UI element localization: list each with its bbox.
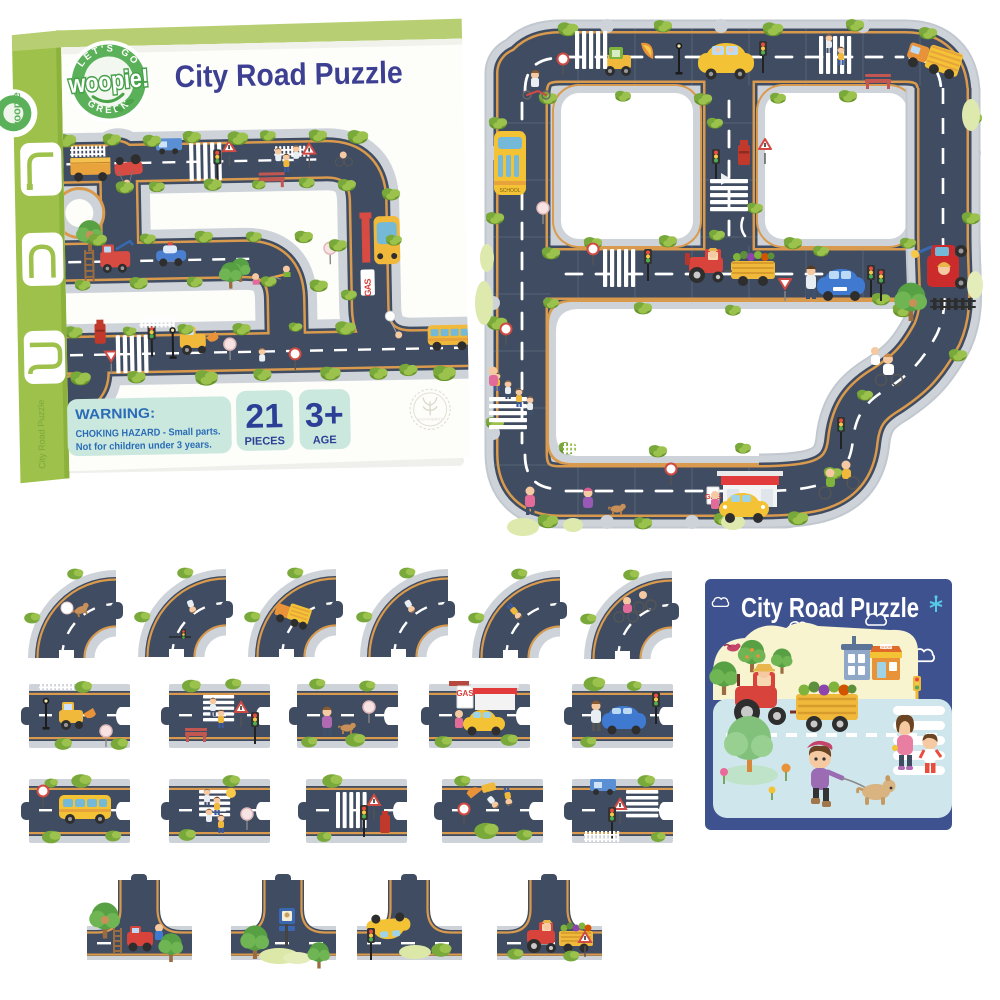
svg-text:GAS: GAS: [363, 278, 373, 296]
svg-text:21: 21: [245, 397, 284, 436]
svg-text:GAS: GAS: [456, 689, 474, 698]
svg-text:City Road Puzzle: City Road Puzzle: [741, 592, 919, 623]
svg-text:AGE: AGE: [313, 434, 337, 446]
svg-text:ECO FRIENDLY: ECO FRIENDLY: [418, 417, 444, 421]
svg-text:SCHOOL: SCHOOL: [499, 188, 520, 194]
svg-text:City Road Puzzle: City Road Puzzle: [174, 55, 403, 94]
svg-text:WARNING:: WARNING:: [75, 405, 155, 423]
svg-text:woopie: woopie: [11, 92, 24, 131]
svg-text:City Road Puzzle: City Road Puzzle: [36, 400, 47, 469]
svg-text:3+: 3+: [305, 396, 344, 435]
svg-text:PIECES: PIECES: [244, 435, 285, 448]
svg-text:SHOP: SHOP: [880, 645, 892, 650]
